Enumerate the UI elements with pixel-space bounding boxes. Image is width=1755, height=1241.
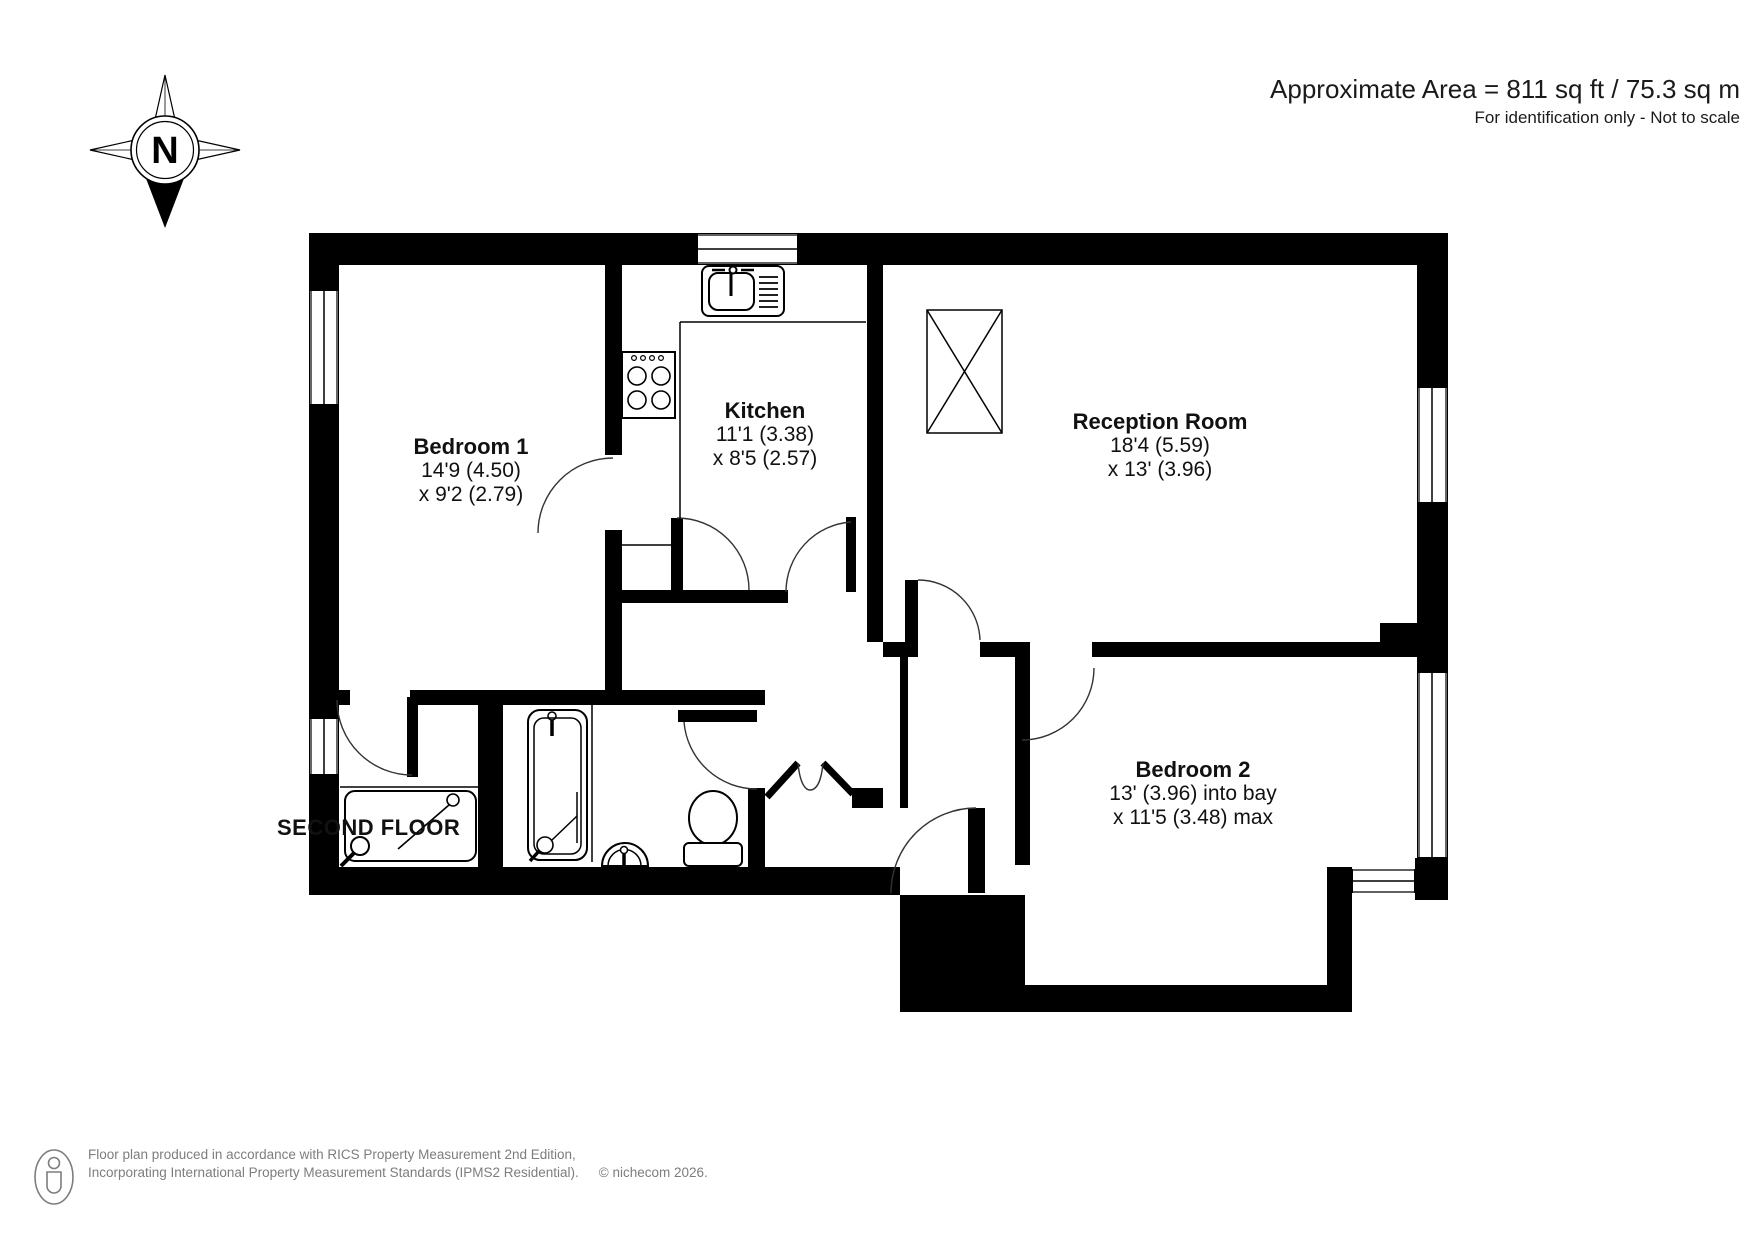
room-label-bedroom2: Bedroom 2 13' (3.96) into bay x 11'5 (3.… (1043, 758, 1343, 830)
room-label-reception: Reception Room 18'4 (5.59) x 13' (3.96) (1010, 410, 1310, 482)
compass-icon: N (90, 75, 240, 228)
footer: Floor plan produced in accordance with R… (30, 1146, 1430, 1181)
bath-icon (528, 710, 587, 861)
bedroom2-name: Bedroom 2 (1043, 758, 1343, 782)
bedroom1-dim2: x 9'2 (2.79) (321, 483, 621, 507)
window-reception-icon (1418, 387, 1447, 503)
compass-north-label: N (151, 130, 178, 172)
door-kitchen (671, 518, 749, 590)
window-bed1-upper-icon (310, 290, 338, 405)
door-cupboard (767, 763, 853, 797)
bedroom2-dim2: x 11'5 (3.48) max (1043, 806, 1343, 830)
approximate-area-label: Approximate Area = 811 sq ft / 75.3 sq m (840, 74, 1740, 105)
wall-bed2-west (1015, 740, 1030, 865)
wall-top (309, 233, 1448, 265)
wall-bed2-bottom (1000, 985, 1352, 1012)
bedroom2-dim1: 13' (3.96) into bay (1043, 782, 1343, 806)
chimney-breast-icon (927, 310, 1002, 433)
wall-reception-bottom-a (883, 642, 918, 657)
wall-bottom (309, 867, 900, 895)
footer-line1: Floor plan produced in accordance with R… (88, 1146, 1430, 1164)
reception-dim2: x 13' (3.96) (1010, 458, 1310, 482)
disclaimer-label: For identification only - Not to scale (840, 108, 1740, 128)
toilet-icon (684, 791, 742, 866)
floorplan-page: N Approximate Area = 811 sq ft / 75.3 sq… (0, 0, 1755, 1241)
kitchen-dim2: x 8'5 (2.57) (615, 447, 915, 471)
door-bed2-hall (891, 808, 985, 893)
kitchen-name: Kitchen (615, 399, 915, 423)
wall-bathroom-right (748, 788, 765, 867)
wall-bed1-bottom (410, 690, 765, 705)
kitchen-dim1: 11'1 (3.38) (615, 423, 915, 447)
sink-icon (702, 266, 784, 316)
reception-name: Reception Room (1010, 410, 1310, 434)
footer-copyright: © nichecom 2026. (599, 1165, 708, 1180)
wall-right-stub (1380, 623, 1417, 650)
door-bedroom2 (1015, 657, 1094, 740)
bedroom1-name: Bedroom 1 (321, 435, 621, 459)
door-hall-neck (786, 517, 856, 592)
wall-kitchen-bottom (622, 590, 788, 603)
wall-bed1-kitchen-lower (605, 530, 622, 705)
basin-icon (602, 843, 648, 866)
window-bed2-right-icon (1418, 672, 1447, 858)
reception-dim1: 18'4 (5.59) (1010, 434, 1310, 458)
wall-ensuite-right (478, 705, 503, 867)
wall-passage-strip (900, 657, 908, 808)
door-bathroom (678, 710, 757, 789)
floorplan-drawing: N (0, 0, 1755, 1241)
door-ensuite (337, 697, 418, 777)
bedroom1-dim1: 14'9 (4.50) (321, 459, 621, 483)
wall-cupboard-stub (852, 788, 883, 808)
window-kitchen-icon (697, 234, 798, 264)
window-bed2-bay-icon (1352, 869, 1415, 893)
wall-step-corner (1415, 858, 1448, 900)
room-label-kitchen: Kitchen 11'1 (3.38) x 8'5 (2.57) (615, 399, 915, 471)
footer-line2: Incorporating International Property Mea… (88, 1165, 579, 1180)
window-bed1-lower-icon (310, 718, 338, 775)
walls (309, 233, 1448, 1012)
wall-ensuite-stub (339, 690, 350, 705)
wall-reception-bottom-b (980, 642, 1030, 657)
door-reception (905, 580, 980, 642)
room-label-bedroom1: Bedroom 1 14'9 (4.50) x 9'2 (2.79) (321, 435, 621, 507)
floor-title: SECOND FLOOR (277, 815, 460, 841)
person-badge-icon (33, 1148, 77, 1208)
wall-bed2-riser (1327, 867, 1352, 1012)
